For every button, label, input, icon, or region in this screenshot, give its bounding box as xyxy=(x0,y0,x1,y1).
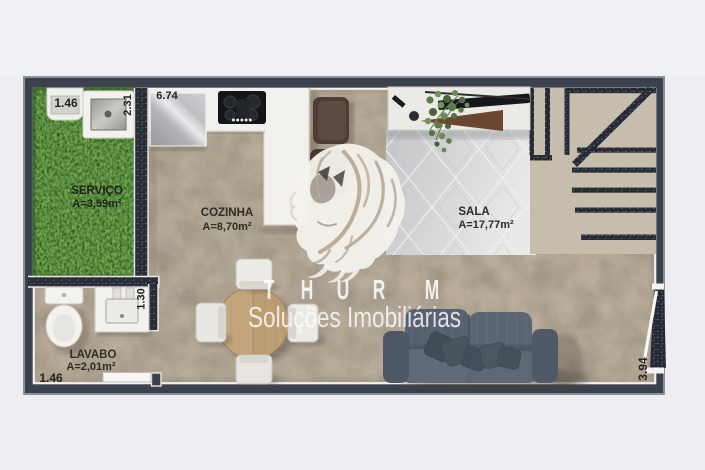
svg-text:A=2,01m²: A=2,01m² xyxy=(66,361,116,373)
svg-text:Soluções Imobiliárias: Soluções Imobiliárias xyxy=(248,302,461,334)
svg-text:6.74: 6.74 xyxy=(156,90,178,102)
svg-text:3.94: 3.94 xyxy=(636,357,650,381)
svg-text:1.46: 1.46 xyxy=(39,371,63,385)
svg-text:A=17,77m²: A=17,77m² xyxy=(458,219,514,231)
svg-text:LAVABO: LAVABO xyxy=(70,349,117,361)
svg-text:R: R xyxy=(373,274,386,305)
svg-text:M: M xyxy=(425,274,439,305)
svg-text:H: H xyxy=(301,274,314,305)
svg-text:A=3,59m²: A=3,59m² xyxy=(72,198,122,210)
svg-text:COZINHA: COZINHA xyxy=(201,207,253,219)
svg-text:2.31: 2.31 xyxy=(122,94,134,115)
svg-text:1.30: 1.30 xyxy=(136,288,148,309)
svg-text:U: U xyxy=(337,274,350,305)
svg-text:T: T xyxy=(264,274,275,305)
svg-text:1.46: 1.46 xyxy=(54,96,78,110)
svg-text:SALA: SALA xyxy=(458,206,489,218)
svg-text:SERVIÇO: SERVIÇO xyxy=(71,185,123,197)
svg-text:A=8,70m²: A=8,70m² xyxy=(202,221,252,233)
